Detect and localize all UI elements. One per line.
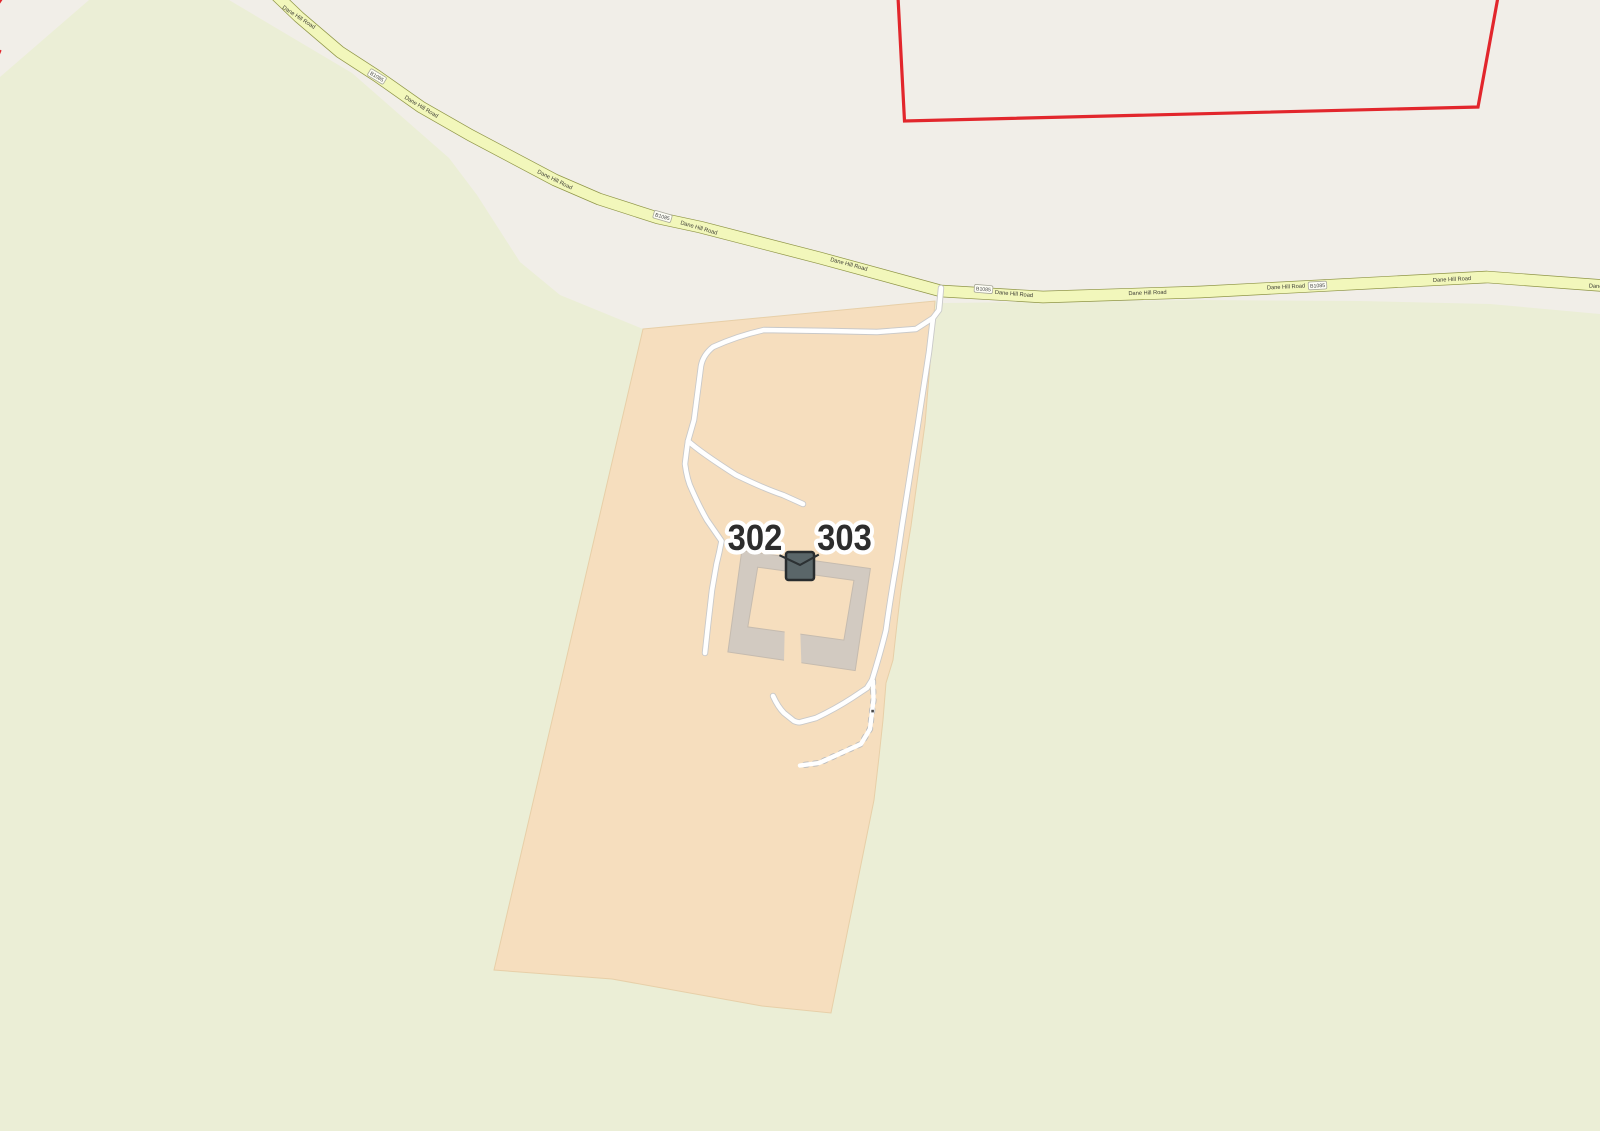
svg-text:302: 302 <box>728 519 783 559</box>
svg-text:303: 303 <box>817 519 872 559</box>
svg-text:B1085: B1085 <box>1310 283 1325 290</box>
